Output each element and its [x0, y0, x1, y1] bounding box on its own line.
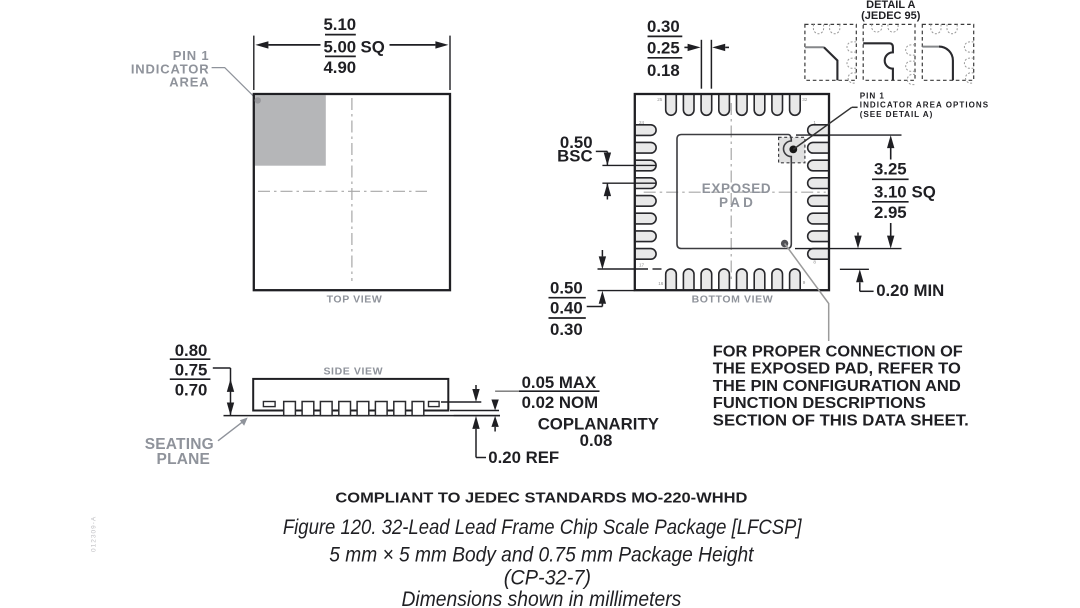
svg-text:4.90: 4.90	[323, 58, 356, 77]
svg-text:EXPOSED: EXPOSED	[702, 181, 771, 196]
svg-text:5.10: 5.10	[323, 15, 356, 34]
svg-text:TOP VIEW: TOP VIEW	[327, 294, 383, 306]
svg-text:3.25: 3.25	[874, 160, 907, 179]
svg-text:COMPLIANT TO JEDEC STANDARDS M: COMPLIANT TO JEDEC STANDARDS MO-220-WHHD	[335, 489, 747, 506]
svg-text:012309-A: 012309-A	[91, 516, 98, 552]
svg-text:0.05 MAX: 0.05 MAX	[522, 373, 597, 392]
svg-text:(CP-32-7): (CP-32-7)	[504, 566, 591, 589]
svg-text:0.25: 0.25	[647, 39, 680, 58]
svg-text:16: 16	[658, 281, 664, 286]
svg-text:24: 24	[639, 120, 645, 125]
svg-text:FOR PROPER CONNECTION OF: FOR PROPER CONNECTION OF	[713, 343, 963, 360]
svg-text:Figure 120. 32-Lead Lead Frame: Figure 120. 32-Lead Lead Frame Chip Scal…	[283, 516, 803, 539]
svg-text:0.75: 0.75	[175, 361, 208, 380]
svg-text:PAD: PAD	[719, 195, 756, 210]
svg-text:0.30: 0.30	[550, 320, 583, 339]
svg-text:AREA: AREA	[169, 75, 209, 90]
svg-text:0.40: 0.40	[550, 298, 583, 317]
svg-text:BSC: BSC	[557, 147, 592, 166]
svg-text:0.50: 0.50	[550, 279, 583, 298]
svg-text:32: 32	[802, 97, 808, 102]
svg-text:0.02 NOM: 0.02 NOM	[522, 393, 598, 412]
svg-text:SECTION OF THIS DATA SHEET.: SECTION OF THIS DATA SHEET.	[713, 412, 969, 429]
svg-text:SQ: SQ	[361, 37, 385, 56]
svg-text:(JEDEC 95): (JEDEC 95)	[861, 10, 921, 22]
svg-text:17: 17	[639, 262, 645, 267]
svg-text:0.20 REF: 0.20 REF	[488, 448, 559, 467]
svg-text:2.95: 2.95	[874, 203, 907, 222]
svg-text:FUNCTION DESCRIPTIONS: FUNCTION DESCRIPTIONS	[713, 395, 926, 412]
svg-text:0.08: 0.08	[580, 431, 613, 450]
svg-text:SIDE VIEW: SIDE VIEW	[323, 365, 383, 377]
svg-text:0.80: 0.80	[175, 341, 208, 360]
svg-text:THE EXPOSED PAD, REFER TO: THE EXPOSED PAD, REFER TO	[713, 361, 961, 378]
svg-text:PIN 1: PIN 1	[860, 91, 885, 100]
svg-text:0.20 MIN: 0.20 MIN	[876, 281, 944, 300]
svg-text:BOTTOM VIEW: BOTTOM VIEW	[692, 294, 774, 306]
svg-text:THE PIN CONFIGURATION AND: THE PIN CONFIGURATION AND	[713, 378, 961, 395]
svg-text:INDICATOR AREA OPTIONS: INDICATOR AREA OPTIONS	[860, 101, 989, 110]
svg-text:5 mm × 5 mm Body and 0.75 mm P: 5 mm × 5 mm Body and 0.75 mm Package Hei…	[329, 543, 754, 566]
svg-text:SQ: SQ	[912, 182, 936, 201]
svg-text:25: 25	[657, 97, 663, 102]
svg-text:PLANE: PLANE	[157, 451, 211, 468]
svg-text:5.00: 5.00	[323, 37, 356, 56]
svg-text:(SEE DETAIL A): (SEE DETAIL A)	[860, 110, 933, 119]
svg-text:3.10: 3.10	[874, 182, 907, 201]
svg-text:1: 1	[813, 120, 816, 125]
svg-text:0.30: 0.30	[647, 17, 680, 36]
svg-text:0.70: 0.70	[175, 381, 208, 400]
svg-text:Dimensions shown in millimeter: Dimensions shown in millimeters	[402, 588, 682, 608]
svg-text:8: 8	[813, 260, 816, 265]
svg-text:0.18: 0.18	[647, 61, 680, 80]
svg-text:9: 9	[803, 280, 806, 285]
